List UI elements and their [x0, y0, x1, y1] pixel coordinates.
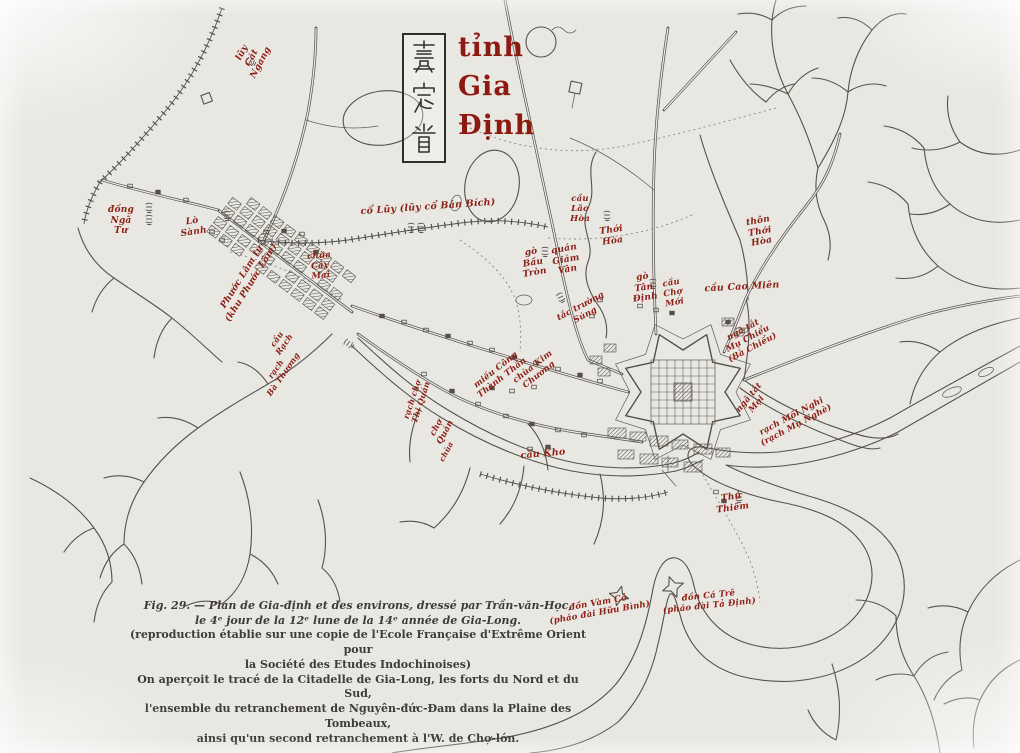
caption-line: l'ensemble du retranchement de Nguyên-đứ…: [128, 702, 588, 731]
seal-box: [402, 33, 446, 163]
creeks-left: [30, 228, 340, 622]
creeks-bottom-right: [808, 560, 1020, 753]
map-figure-page: { "figure": { "type": "historical-map-sc…: [0, 0, 1020, 753]
caption-line: la Société des Etudes Indochinoises): [128, 658, 588, 673]
seal-character-dinh: [411, 82, 437, 115]
caption-line: (reproduction établie sur une copie de l…: [128, 628, 588, 657]
seal-character-tinh: [411, 123, 437, 156]
map-title: tỉnh Gia Định: [458, 28, 535, 145]
map-title-line: Định: [458, 106, 535, 145]
river-forts: [609, 577, 683, 606]
creeks-top-right: [730, 0, 906, 260]
seal-character-gia: [411, 40, 437, 73]
caption-line: ainsi qu'un second retranchement à l'W. …: [128, 732, 588, 747]
creeks-right-edge: [868, 96, 1020, 404]
map-title-line: tỉnh: [458, 28, 535, 67]
caption-line: On aperçoit le tracé de la Citadelle de …: [128, 673, 588, 702]
small-creeks-center: [400, 152, 607, 544]
figure-caption: Fig. 29. — Plan de Gia-định et des envir…: [128, 599, 588, 746]
map-title-line: Gia: [458, 67, 535, 106]
cholon-town-grid: [207, 188, 356, 319]
caption-line: le 4ᵉ jour de la 12ᵉ lune de la 14ᵉ anné…: [128, 614, 588, 629]
caption-line: Fig. 29. — Plan de Gia-định et des envir…: [128, 599, 588, 614]
